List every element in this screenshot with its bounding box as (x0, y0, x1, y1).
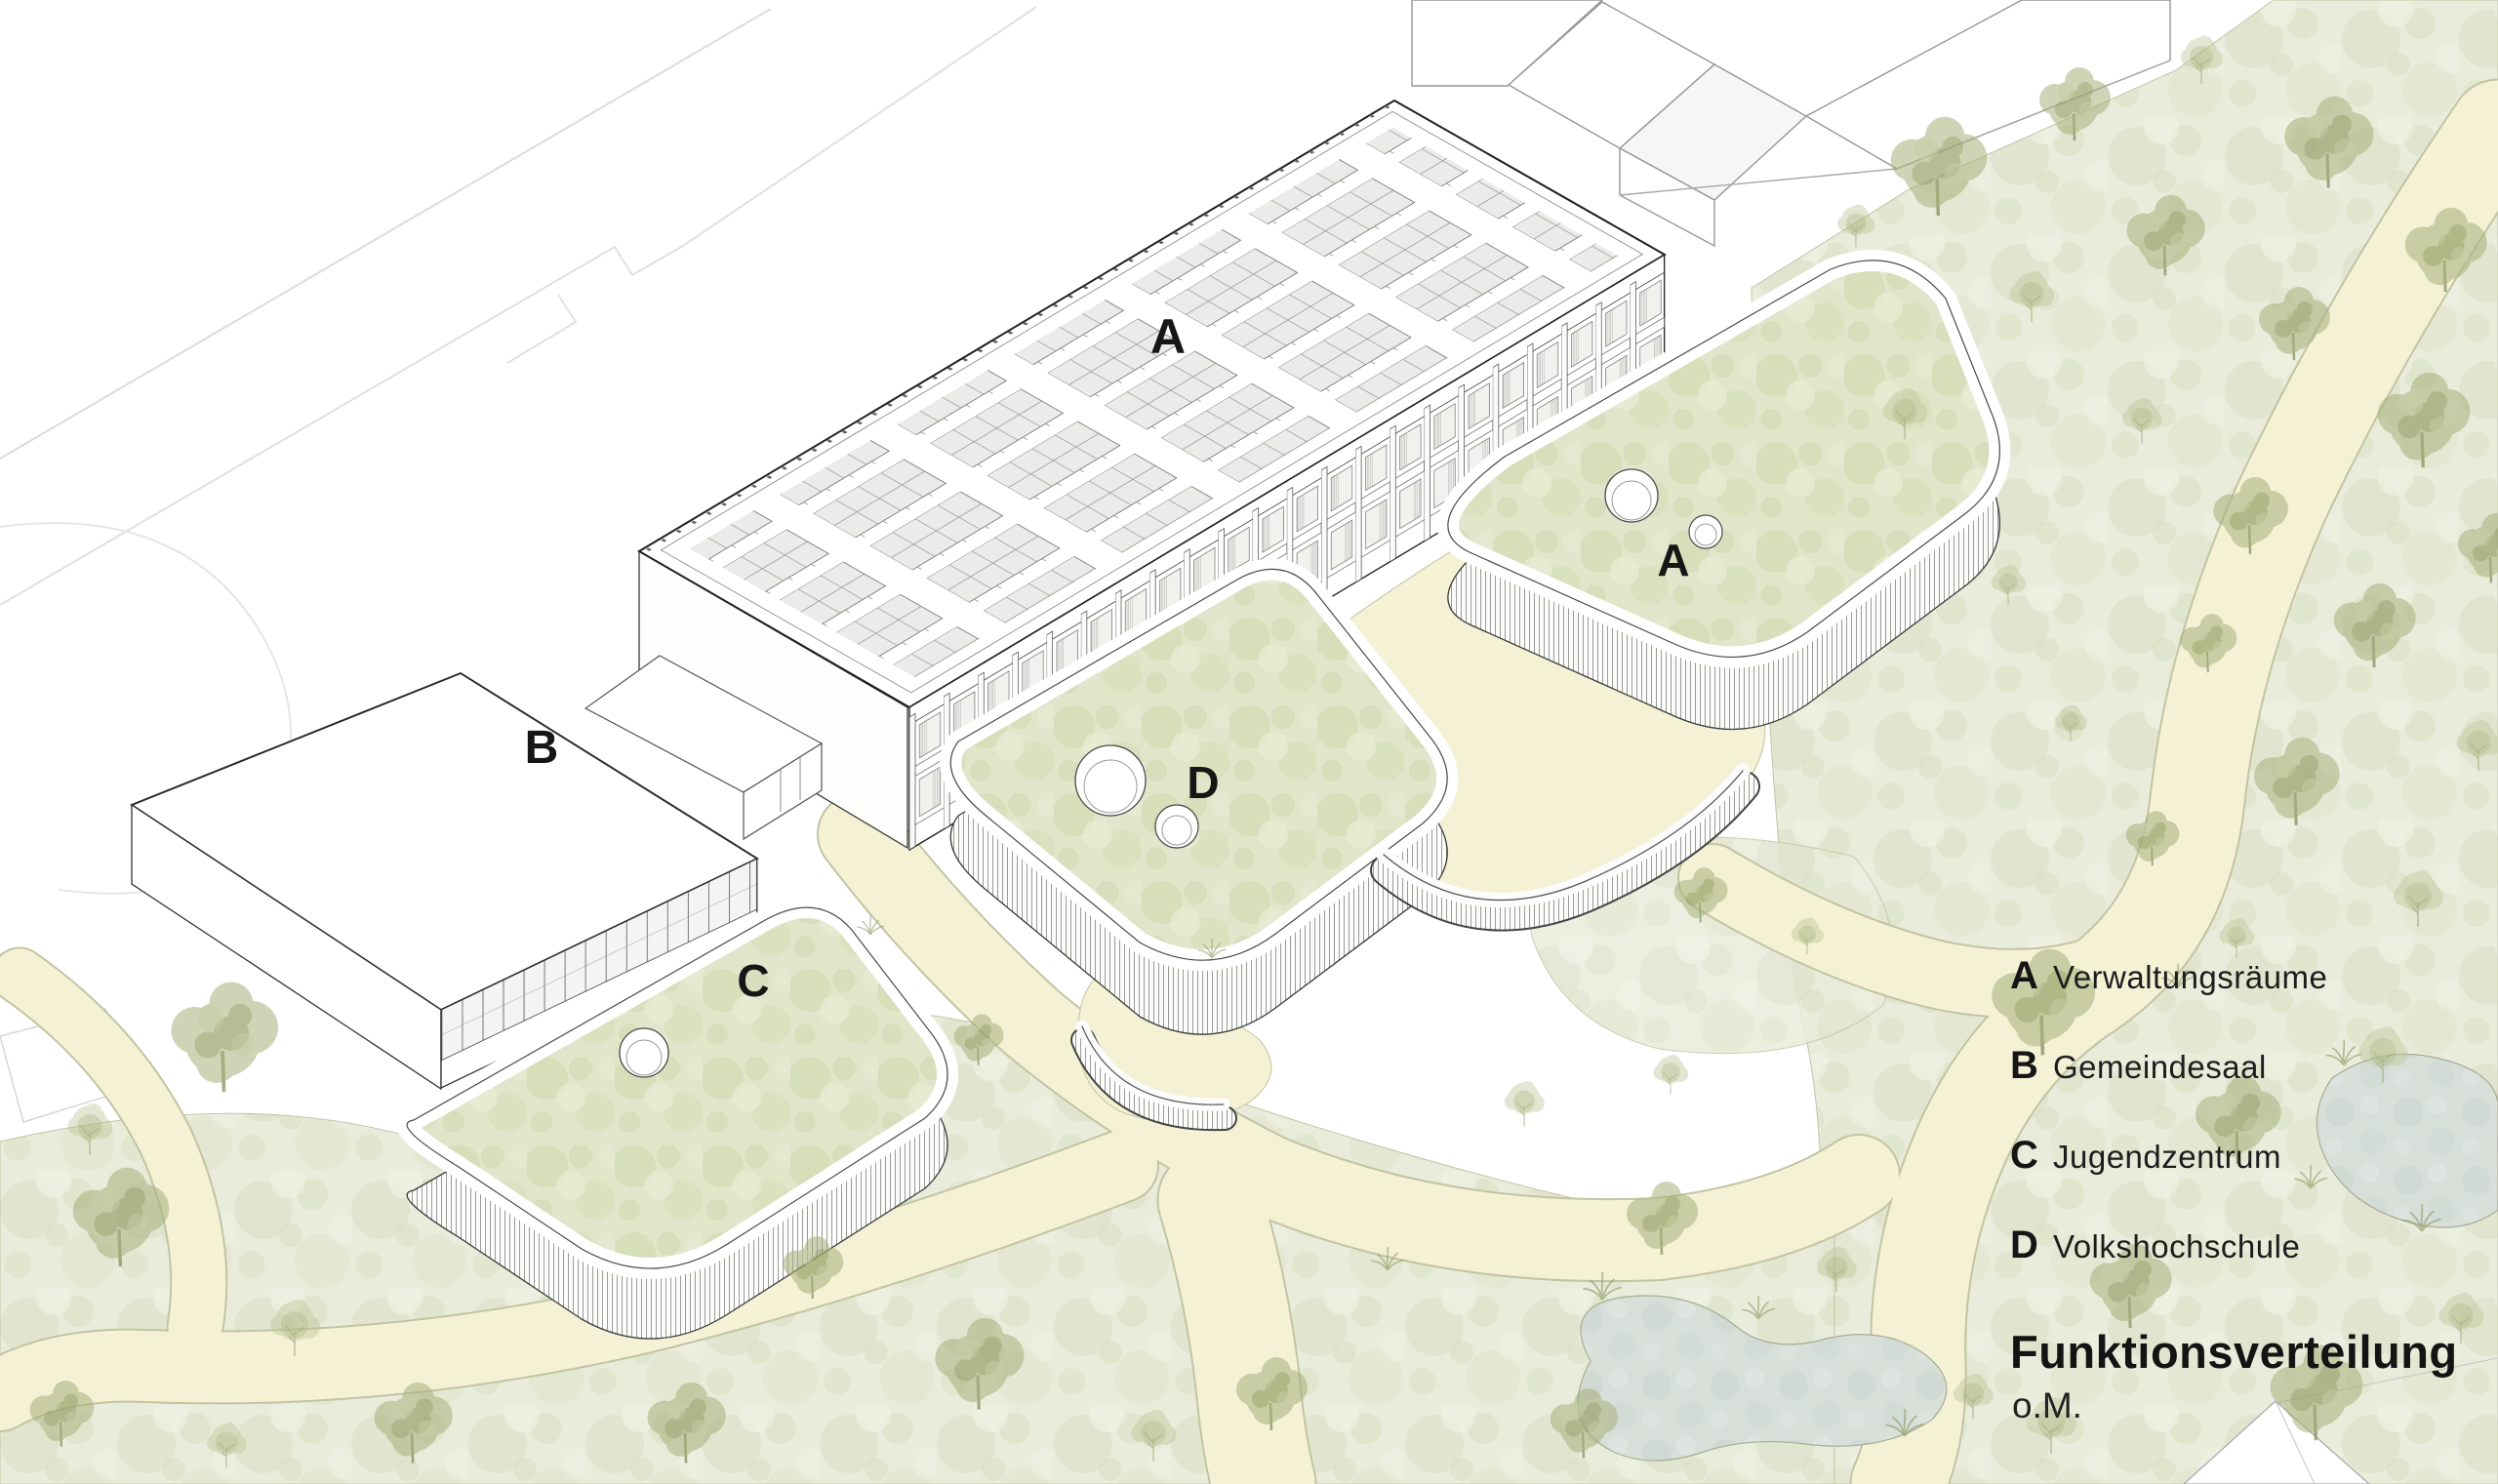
legend-label-d: Volkshochschule (2053, 1228, 2300, 1265)
label-building-b: B (525, 722, 559, 774)
legend-item-c: C Jugendzentrum (2010, 1134, 2281, 1178)
legend-item-b: B Gemeindesaal (2010, 1044, 2267, 1088)
legend-key-c: C (2010, 1134, 2053, 1178)
legend-label-c: Jugendzentrum (2053, 1139, 2281, 1176)
site-diagram-page: A A B C D A Verwaltungsräume B Gemeindes… (0, 0, 2498, 1484)
legend-label-a: Verwaltungsräume (2053, 959, 2327, 996)
legend-title: Funktionsverteilung (2010, 1325, 2458, 1379)
legend-key-d: D (2010, 1223, 2053, 1267)
label-wing-d: D (1187, 757, 1219, 808)
label-wing-a: A (1657, 535, 1689, 585)
legend-label-b: Gemeindesaal (2053, 1049, 2267, 1086)
legend-item-a: A Verwaltungsräume (2010, 954, 2327, 998)
label-bar-roof-a: A (1150, 309, 1186, 364)
skylight-circle (620, 1028, 668, 1077)
label-wing-c: C (737, 955, 769, 1006)
legend-scale-note: o.M. (2012, 1385, 2082, 1426)
legend-key-a: A (2010, 954, 2053, 998)
legend-item-d: D Volkshochschule (2010, 1223, 2300, 1267)
legend-key-b: B (2010, 1044, 2053, 1088)
